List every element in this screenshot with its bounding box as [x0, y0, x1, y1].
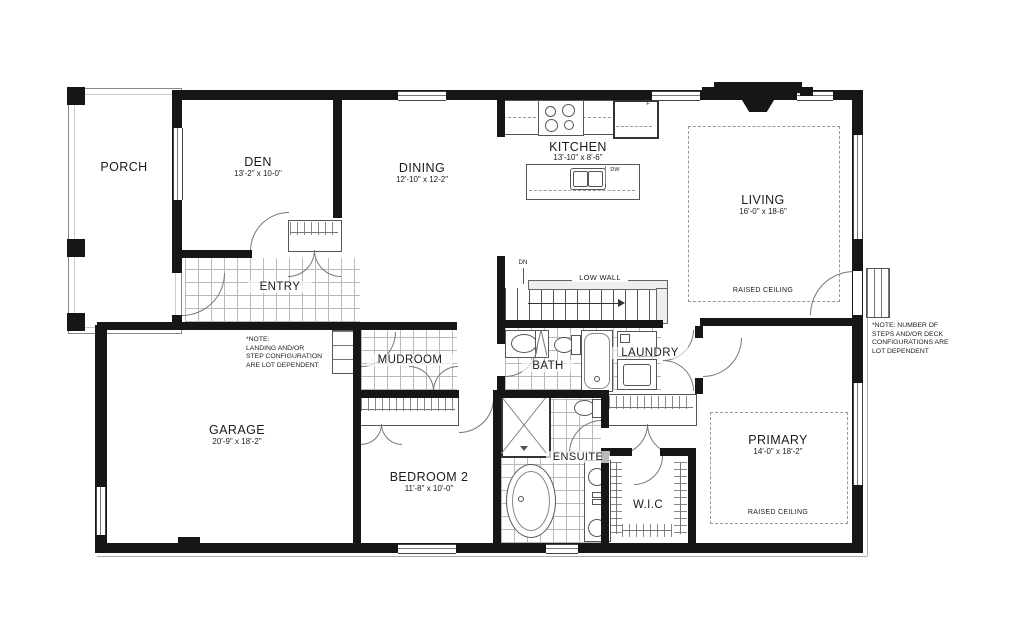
raised-ceiling-label: RAISED CEILING	[724, 287, 802, 294]
stairs-dn-tick	[523, 268, 524, 284]
tub-faucet	[518, 496, 524, 502]
linen-diagonal	[535, 330, 547, 356]
wall	[505, 320, 663, 328]
wall	[97, 543, 863, 553]
window	[398, 544, 456, 554]
room-label-dining: DINING	[377, 161, 467, 175]
closet-rod	[680, 462, 681, 534]
wall	[695, 326, 703, 338]
door-opening	[853, 271, 862, 315]
room-dims-primary: 14'-0" x 18'-2"	[730, 447, 826, 456]
raised-ceiling-outline	[710, 412, 848, 524]
toilet-tank	[571, 335, 581, 355]
bathtub-drain	[594, 376, 600, 382]
room-label-bedroom2: BEDROOM 2	[383, 470, 475, 484]
stove-burner	[564, 120, 574, 130]
wall	[601, 390, 609, 428]
window	[546, 544, 578, 554]
wall	[497, 330, 505, 344]
wall	[333, 90, 342, 218]
room-label-ensuite: ENSUITE	[546, 451, 610, 463]
closet-rod	[290, 232, 338, 233]
porch-post	[67, 87, 85, 105]
stairs-arrow	[528, 303, 620, 304]
fridge	[613, 100, 659, 139]
room-label-wic: W.I.C	[622, 499, 674, 511]
wall	[97, 322, 355, 330]
room-dims-garage: 20'-9" x 18'-2"	[192, 437, 282, 446]
wall	[180, 250, 252, 258]
window	[398, 91, 446, 101]
low-wall	[656, 288, 668, 324]
room-label-bath: BATH	[522, 360, 574, 372]
stairs-dn-label: DN	[514, 260, 532, 266]
wall	[688, 448, 696, 543]
room-label-living: LIVING	[718, 193, 808, 207]
window	[96, 487, 106, 535]
window	[853, 135, 863, 239]
door-swing	[459, 398, 494, 433]
stove-burner	[545, 119, 558, 132]
wall	[353, 390, 459, 398]
roof-offset-line	[97, 556, 867, 557]
door-swing	[250, 212, 289, 251]
closet-hangers	[290, 222, 338, 235]
wall	[700, 318, 853, 326]
wall	[361, 322, 457, 330]
wall	[353, 322, 361, 543]
shower-drain-mark	[520, 446, 528, 451]
window	[853, 383, 863, 485]
door-swing	[381, 424, 402, 445]
note-landing: *NOTE: LANDING AND/OR STEP CONFIGURATION…	[246, 336, 338, 370]
dryer-door	[623, 364, 651, 386]
exterior-steps	[866, 268, 890, 318]
porch-post	[67, 239, 85, 257]
room-dims-den: 13'-2" x 10-0"	[213, 169, 303, 178]
stove-burner	[562, 104, 575, 117]
sink-basin	[573, 171, 588, 187]
closet-rod	[622, 530, 672, 531]
room-dims-bedroom2: 11'-8" x 10'-0"	[383, 484, 475, 493]
room-label-laundry: LAUNDRY	[612, 347, 688, 359]
wall	[497, 256, 505, 330]
floor-plan: PORCH *NOTE: NUMBER OF STEPS AND/OR DECK…	[0, 0, 1024, 640]
porch-post	[67, 313, 85, 331]
room-dims-kitchen: 13'-10" x 8'-6"	[533, 153, 623, 162]
fireplace-arm	[702, 87, 715, 96]
fridge-dash-line	[616, 126, 652, 127]
low-wall-label: LOW WALL	[572, 273, 628, 282]
wall-bump	[178, 537, 200, 543]
fireplace-arm	[800, 87, 813, 96]
fridge-label: F	[644, 101, 652, 107]
porch-inner-line	[74, 94, 176, 328]
door-swing	[703, 338, 742, 377]
door-swing	[663, 360, 694, 391]
room-label-den: DEN	[213, 155, 303, 169]
roof-offset-line	[867, 318, 868, 556]
dishwasher-label: DW	[607, 167, 623, 173]
note-deck-steps: *NOTE: NUMBER OF STEPS AND/OR DECK CONFI…	[872, 322, 956, 356]
closet-rod	[609, 407, 693, 408]
room-dims-dining: 12'-10" x 12-2"	[377, 175, 467, 184]
stairs	[505, 288, 657, 320]
room-label-primary: PRIMARY	[730, 433, 826, 447]
stove-burner	[545, 106, 556, 117]
door-swing	[634, 456, 663, 485]
room-label-entry: ENTRY	[248, 281, 312, 293]
island-dash-line	[529, 190, 635, 191]
wall	[695, 378, 703, 394]
stove	[538, 100, 584, 136]
closet-rod	[361, 409, 455, 410]
wall	[497, 90, 505, 137]
island-divider	[605, 166, 606, 184]
closet-rod	[616, 462, 617, 534]
window	[652, 91, 700, 101]
room-label-mudroom: MUDROOM	[367, 354, 453, 366]
window	[173, 128, 183, 200]
wall	[493, 390, 501, 543]
room-label-kitchen: KITCHEN	[533, 140, 623, 154]
wall	[497, 390, 609, 398]
freestanding-tub-inner	[512, 471, 550, 531]
wall	[172, 258, 182, 273]
wall	[660, 448, 696, 456]
room-dims-living: 16'-0" x 18-6"	[718, 207, 808, 216]
door-swing	[361, 424, 382, 445]
raised-ceiling-label: RAISED CEILING	[739, 509, 817, 516]
sink-basin	[588, 171, 603, 187]
stairs-arrow-head	[618, 299, 625, 307]
room-label-garage: GARAGE	[192, 423, 282, 437]
room-label-porch: PORCH	[79, 160, 169, 174]
washer-detail	[620, 334, 630, 343]
